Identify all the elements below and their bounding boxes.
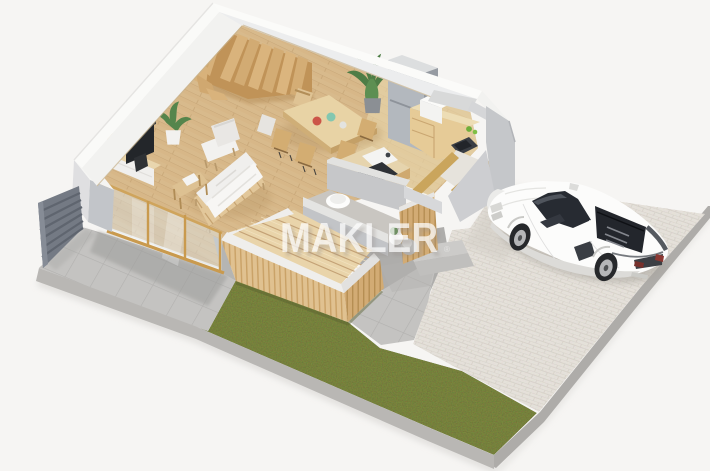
svg-text:MAKLER: MAKLER (280, 214, 438, 261)
svg-text:®: ® (444, 245, 450, 254)
